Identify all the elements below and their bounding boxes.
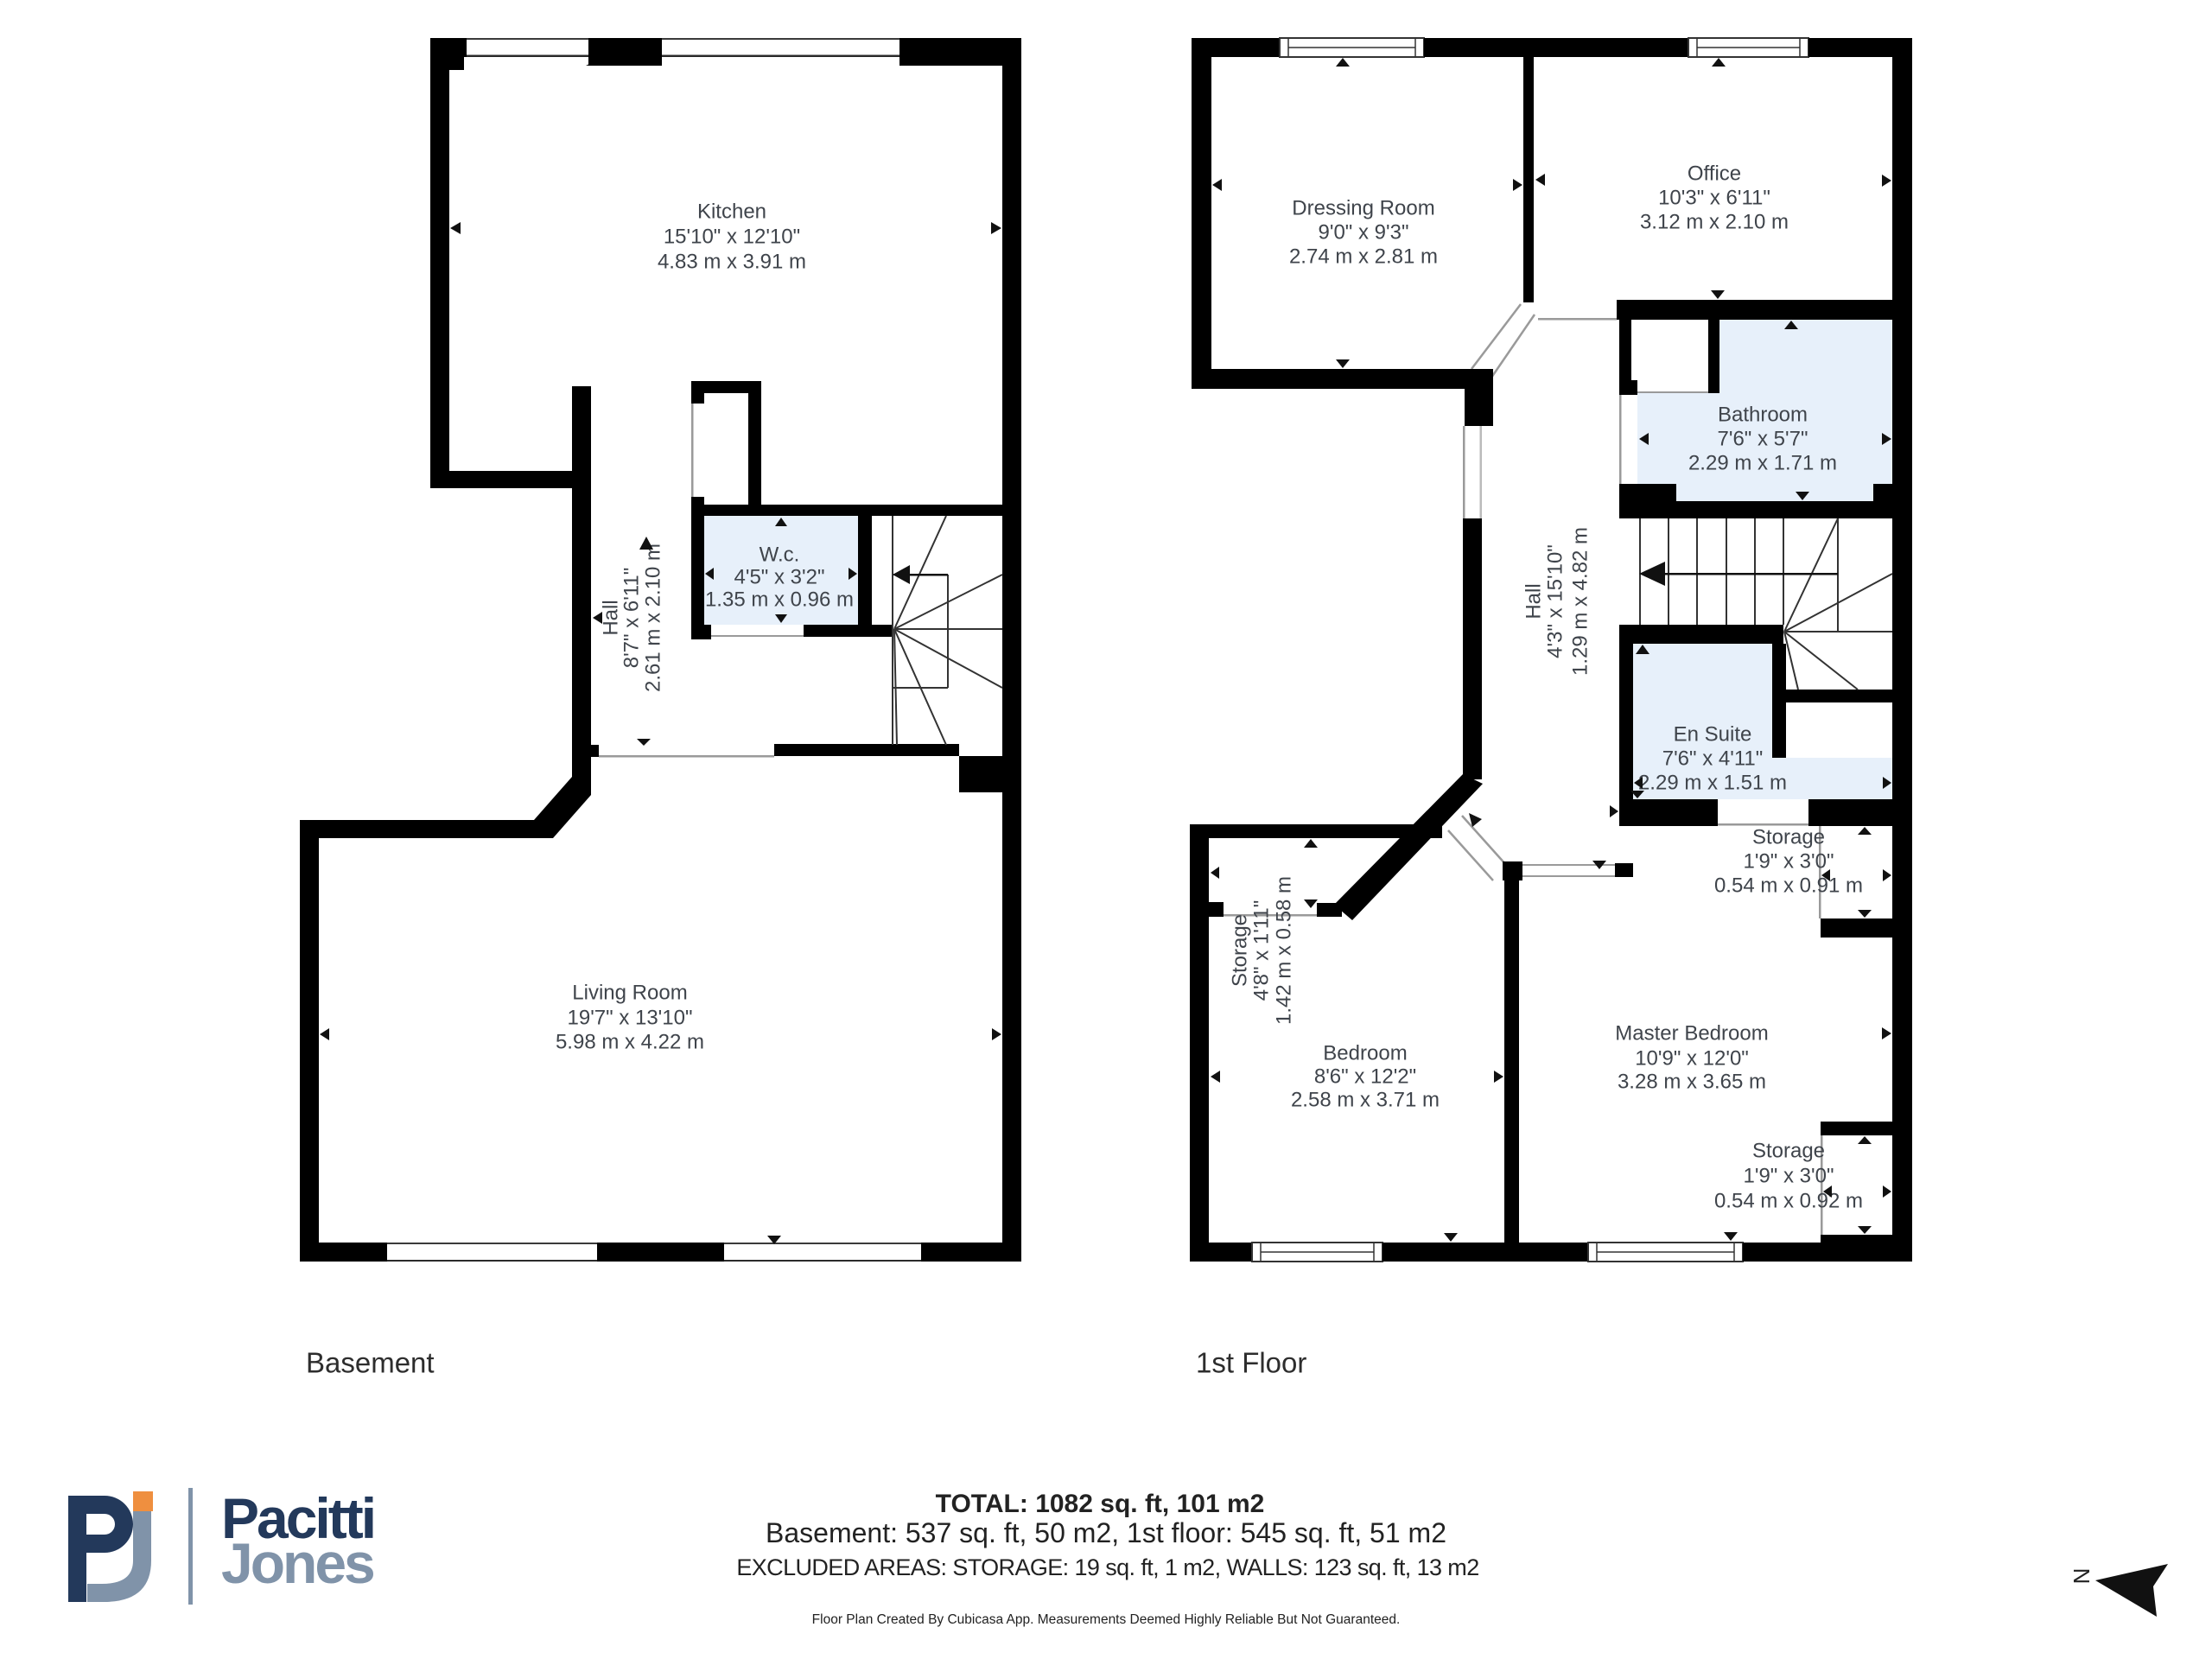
svg-text:2.29 m x 1.51 m: 2.29 m x 1.51 m	[1638, 772, 1787, 795]
svg-text:Basement: 537 sq. ft, 50 m2, 1: Basement: 537 sq. ft, 50 m2, 1st floor: …	[766, 1517, 1446, 1548]
svg-text:Hall: Hall	[1522, 583, 1546, 619]
svg-text:5.98 m x 4.22 m: 5.98 m x 4.22 m	[556, 1031, 704, 1054]
svg-text:1.29 m x 4.82 m: 1.29 m x 4.82 m	[1569, 527, 1592, 676]
svg-text:Floor Plan Created By Cubicasa: Floor Plan Created By Cubicasa App. Meas…	[812, 1612, 1401, 1627]
svg-text:4'8" x 1'11": 4'8" x 1'11"	[1250, 900, 1274, 1001]
svg-text:TOTAL: 1082 sq. ft, 101 m2: TOTAL: 1082 sq. ft, 101 m2	[936, 1490, 1265, 1518]
svg-text:EXCLUDED AREAS: STORAGE: 19 sq: EXCLUDED AREAS: STORAGE: 19 sq. ft, 1 m2…	[736, 1554, 1478, 1580]
svg-text:Master Bedroom: Master Bedroom	[1615, 1022, 1768, 1046]
svg-text:0.54 m x 0.92 m: 0.54 m x 0.92 m	[1714, 1190, 1863, 1213]
svg-text:2.58 m x 3.71 m: 2.58 m x 3.71 m	[1291, 1089, 1440, 1112]
svg-text:2.74 m x 2.81 m: 2.74 m x 2.81 m	[1289, 245, 1438, 269]
svg-text:4'3" x 15'10": 4'3" x 15'10"	[1544, 544, 1567, 658]
svg-text:7'6" x 5'7": 7'6" x 5'7"	[1718, 428, 1808, 451]
svg-text:2.61 m x 2.10 m: 2.61 m x 2.10 m	[642, 543, 665, 692]
svg-text:Living Room: Living Room	[572, 982, 687, 1005]
svg-text:7'6" x 4'11": 7'6" x 4'11"	[1662, 747, 1764, 771]
svg-text:10'3" x 6'11": 10'3" x 6'11"	[1658, 187, 1770, 210]
svg-text:Basement: Basement	[306, 1347, 435, 1379]
svg-text:4'5" x 3'2": 4'5" x 3'2"	[734, 566, 825, 589]
svg-text:Hall: Hall	[600, 600, 623, 635]
svg-text:15'10" x 12'10": 15'10" x 12'10"	[664, 226, 800, 249]
svg-text:3.12 m x 2.10 m: 3.12 m x 2.10 m	[1640, 211, 1789, 234]
svg-text:N: N	[2069, 1568, 2094, 1585]
svg-text:9'0" x 9'3": 9'0" x 9'3"	[1319, 221, 1409, 245]
svg-text:Bedroom: Bedroom	[1323, 1042, 1407, 1065]
svg-text:Office: Office	[1688, 162, 1741, 186]
svg-text:Storage: Storage	[1752, 826, 1825, 849]
svg-text:2.29 m x 1.71 m: 2.29 m x 1.71 m	[1688, 452, 1837, 475]
svg-text:Storage: Storage	[1752, 1140, 1825, 1163]
svg-text:8'6" x 12'2": 8'6" x 12'2"	[1314, 1065, 1416, 1089]
svg-text:Bathroom: Bathroom	[1718, 404, 1808, 427]
svg-text:Dressing Room: Dressing Room	[1292, 197, 1434, 220]
svg-text:Storage: Storage	[1229, 914, 1252, 987]
svg-text:10'9" x 12'0": 10'9" x 12'0"	[1635, 1047, 1749, 1071]
svg-text:1'9" x 3'0": 1'9" x 3'0"	[1744, 1165, 1834, 1188]
svg-text:0.54 m x 0.91 m: 0.54 m x 0.91 m	[1714, 874, 1863, 898]
svg-text:3.28 m x 3.65 m: 3.28 m x 3.65 m	[1618, 1071, 1766, 1094]
svg-text:Jones: Jones	[221, 1531, 373, 1595]
svg-text:En Suite: En Suite	[1674, 723, 1752, 747]
svg-text:1'9" x 3'0": 1'9" x 3'0"	[1744, 850, 1834, 874]
svg-text:1.35 m x 0.96 m: 1.35 m x 0.96 m	[705, 588, 854, 612]
svg-text:19'7" x 13'10": 19'7" x 13'10"	[568, 1007, 693, 1030]
svg-text:8'7" x 6'11": 8'7" x 6'11"	[620, 568, 644, 669]
svg-text:1st Floor: 1st Floor	[1196, 1347, 1306, 1379]
svg-text:Kitchen: Kitchen	[697, 200, 766, 224]
svg-text:W.c.: W.c.	[760, 543, 800, 567]
svg-text:1.42 m x 0.58 m: 1.42 m x 0.58 m	[1273, 876, 1296, 1025]
svg-text:4.83 m x 3.91 m: 4.83 m x 3.91 m	[658, 251, 806, 274]
